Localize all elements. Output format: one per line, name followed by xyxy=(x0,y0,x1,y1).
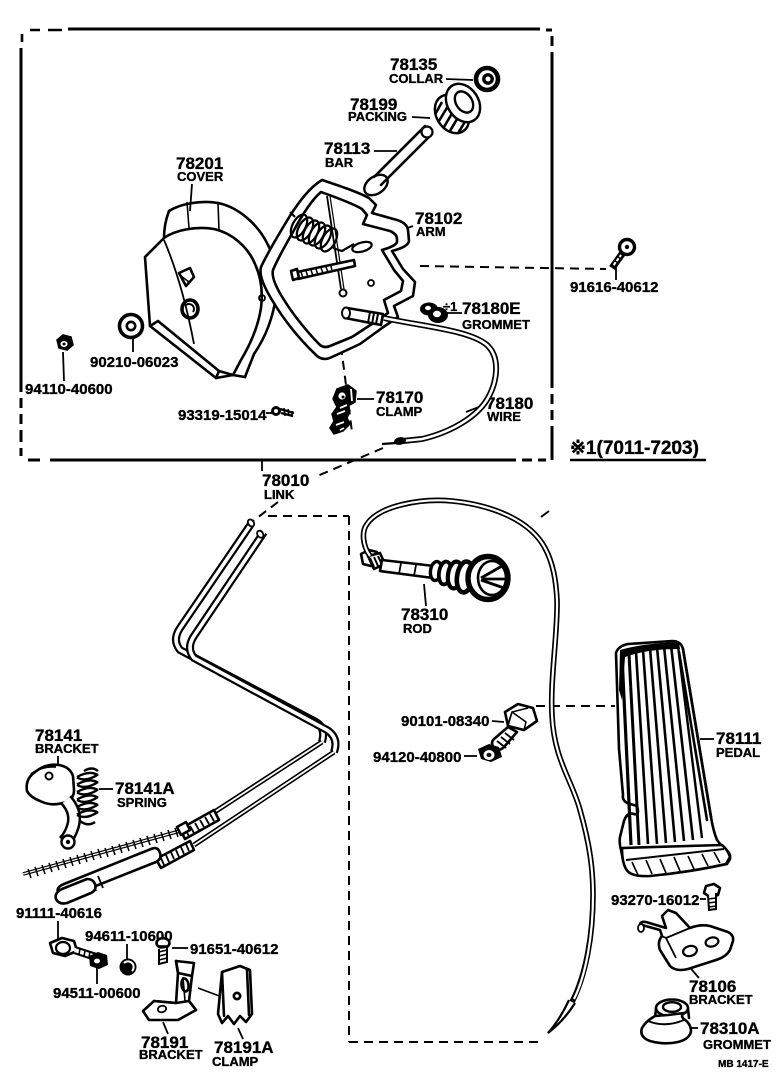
svg-text:BRACKET: BRACKET xyxy=(139,1047,203,1062)
svg-text:SPRING: SPRING xyxy=(117,795,167,810)
svg-text:94511-00600: 94511-00600 xyxy=(53,985,141,1002)
svg-text:※1(7011-7203): ※1(7011-7203) xyxy=(570,438,699,459)
svg-text:93270-16012: 93270-16012 xyxy=(611,892,699,909)
svg-text:LINK: LINK xyxy=(264,487,295,502)
svg-text:BAR: BAR xyxy=(325,155,354,170)
svg-text:COVER: COVER xyxy=(177,169,224,184)
svg-text:GROMMET: GROMMET xyxy=(462,317,530,332)
svg-text:ARM: ARM xyxy=(416,224,446,239)
svg-text:BRACKET: BRACKET xyxy=(689,992,753,1007)
svg-text:91111-40616: 91111-40616 xyxy=(16,905,102,922)
svg-text:78180E: 78180E xyxy=(462,299,521,318)
svg-text:MB 1417-E: MB 1417-E xyxy=(718,1059,769,1070)
svg-text:PEDAL: PEDAL xyxy=(716,745,760,760)
svg-text:CLAMP: CLAMP xyxy=(376,404,423,419)
svg-text:CLAMP: CLAMP xyxy=(212,1054,259,1069)
svg-text:ROD: ROD xyxy=(403,621,432,636)
svg-text:WIRE: WIRE xyxy=(487,409,521,424)
svg-text:94110-40600: 94110-40600 xyxy=(25,381,113,398)
svg-text:94120-40800: 94120-40800 xyxy=(373,749,461,766)
svg-text:GROMMET: GROMMET xyxy=(703,1037,771,1052)
svg-text:91616-40612: 91616-40612 xyxy=(570,279,658,296)
svg-text:91651-40612: 91651-40612 xyxy=(190,941,278,958)
svg-text:BRACKET: BRACKET xyxy=(35,741,99,756)
svg-text:90101-08340: 90101-08340 xyxy=(401,713,489,730)
svg-text:90210-06023: 90210-06023 xyxy=(90,354,178,371)
svg-text:PACKING: PACKING xyxy=(348,109,407,124)
svg-text:93319-15014: 93319-15014 xyxy=(178,407,267,424)
svg-text:78310A: 78310A xyxy=(700,1019,760,1038)
svg-text:COLLAR: COLLAR xyxy=(389,71,444,86)
